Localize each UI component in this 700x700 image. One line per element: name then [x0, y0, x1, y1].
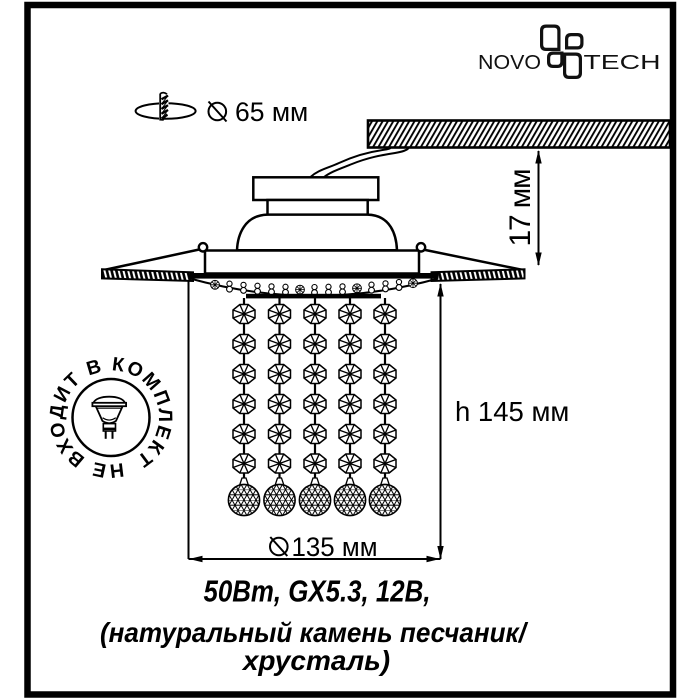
svg-text:17 мм: 17 мм	[504, 170, 537, 247]
svg-text:хрусталь): хрусталь)	[241, 645, 390, 676]
svg-text:NOVO: NOVO	[478, 52, 541, 74]
svg-text:50Вm, GX5.3, 12В,: 50Вm, GX5.3, 12В,	[204, 574, 431, 609]
svg-text:135 мм: 135 мм	[292, 532, 378, 562]
svg-text:TECH: TECH	[584, 52, 661, 74]
svg-text:65 мм: 65 мм	[235, 97, 308, 127]
svg-text:h 145 мм: h 145 мм	[455, 396, 569, 427]
svg-text:(натуральный камень песчаник/: (натуральный камень песчаник/	[100, 617, 529, 648]
